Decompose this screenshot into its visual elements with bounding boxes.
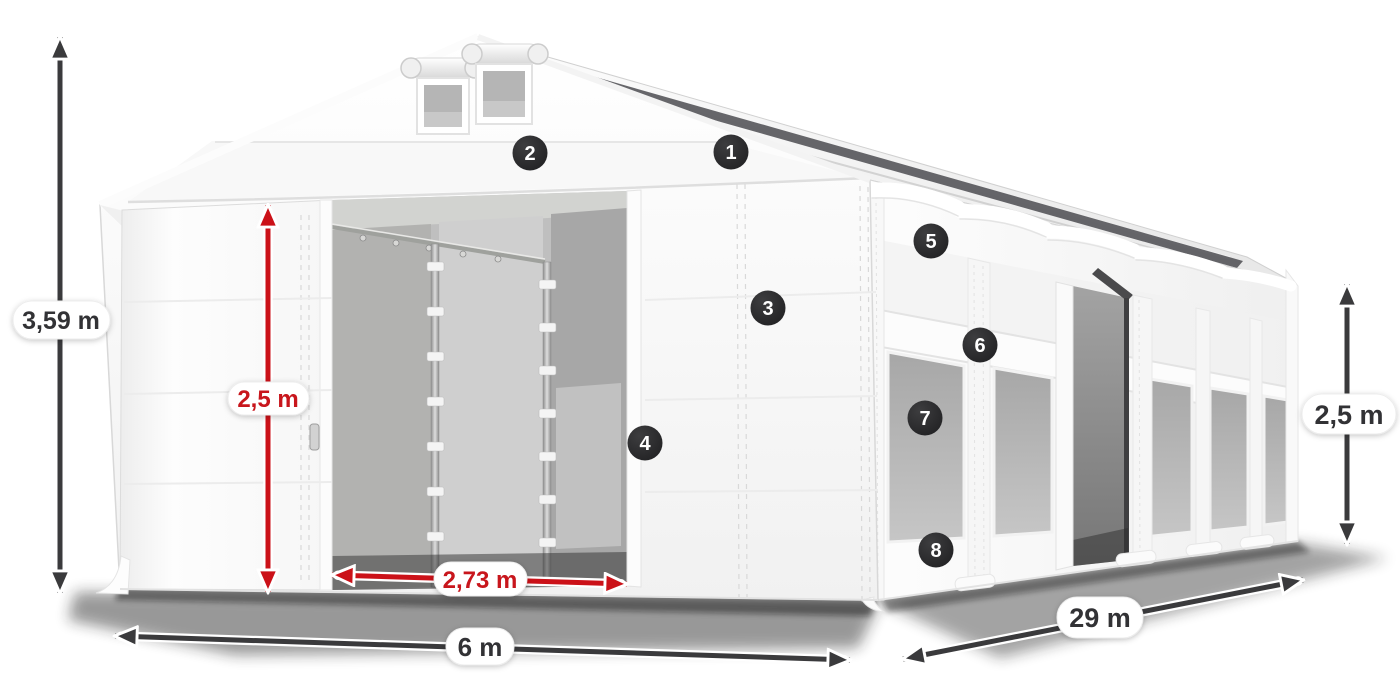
label-front-width: 6 m bbox=[446, 628, 514, 665]
badge-5-number: 5 bbox=[925, 231, 936, 253]
side-door-edge bbox=[1056, 282, 1073, 570]
label-length: 29 m bbox=[1057, 597, 1143, 638]
interior-left-mesh bbox=[332, 224, 431, 590]
badge-1: 1 bbox=[714, 135, 749, 170]
side-window-1 bbox=[888, 352, 964, 542]
label-door-width: 2,73 m bbox=[434, 562, 527, 596]
label-side-height: 2,5 m bbox=[1302, 394, 1396, 434]
badge-7: 7 bbox=[908, 401, 943, 436]
badge-7-number: 7 bbox=[919, 408, 930, 430]
side-window-5 bbox=[1264, 396, 1288, 525]
badge-4-number: 4 bbox=[639, 433, 651, 455]
door-width-value: 2,73 m bbox=[443, 567, 518, 594]
side-window-2 bbox=[994, 368, 1052, 536]
interior-pole-side bbox=[1124, 298, 1129, 558]
badge-6-number: 6 bbox=[974, 335, 985, 357]
door-handle bbox=[310, 424, 319, 450]
interior-far-opening bbox=[439, 216, 543, 587]
badge-4: 4 bbox=[628, 426, 663, 461]
length-value: 29 m bbox=[1069, 603, 1131, 633]
door-height-value: 2,5 m bbox=[237, 386, 298, 413]
front-door-opening bbox=[332, 191, 627, 590]
diagram-canvas: 1 2 3 4 5 6 7 8 bbox=[0, 0, 1400, 700]
badge-3-number: 3 bbox=[762, 298, 773, 320]
badge-6: 6 bbox=[963, 328, 998, 363]
interior-window-patch bbox=[556, 383, 621, 549]
badge-8-number: 8 bbox=[930, 540, 941, 562]
badge-1-number: 1 bbox=[725, 142, 736, 164]
tent-dimension-diagram: 1 2 3 4 5 6 7 8 bbox=[0, 0, 1400, 700]
front-width-value: 6 m bbox=[458, 632, 503, 662]
side-window-4 bbox=[1210, 388, 1248, 531]
total-height-value: 3,59 m bbox=[22, 307, 100, 335]
badge-8: 8 bbox=[919, 533, 954, 568]
badge-2-number: 2 bbox=[524, 143, 535, 165]
badge-5: 5 bbox=[914, 224, 949, 259]
badge-2: 2 bbox=[513, 136, 548, 171]
label-door-height: 2,5 m bbox=[228, 382, 309, 415]
interior-pole-2 bbox=[543, 262, 551, 586]
side-door-opening bbox=[1073, 286, 1128, 566]
badge-3: 3 bbox=[751, 291, 786, 326]
side-height-value: 2,5 m bbox=[1314, 400, 1383, 430]
label-total-height: 3,59 m bbox=[13, 301, 110, 339]
